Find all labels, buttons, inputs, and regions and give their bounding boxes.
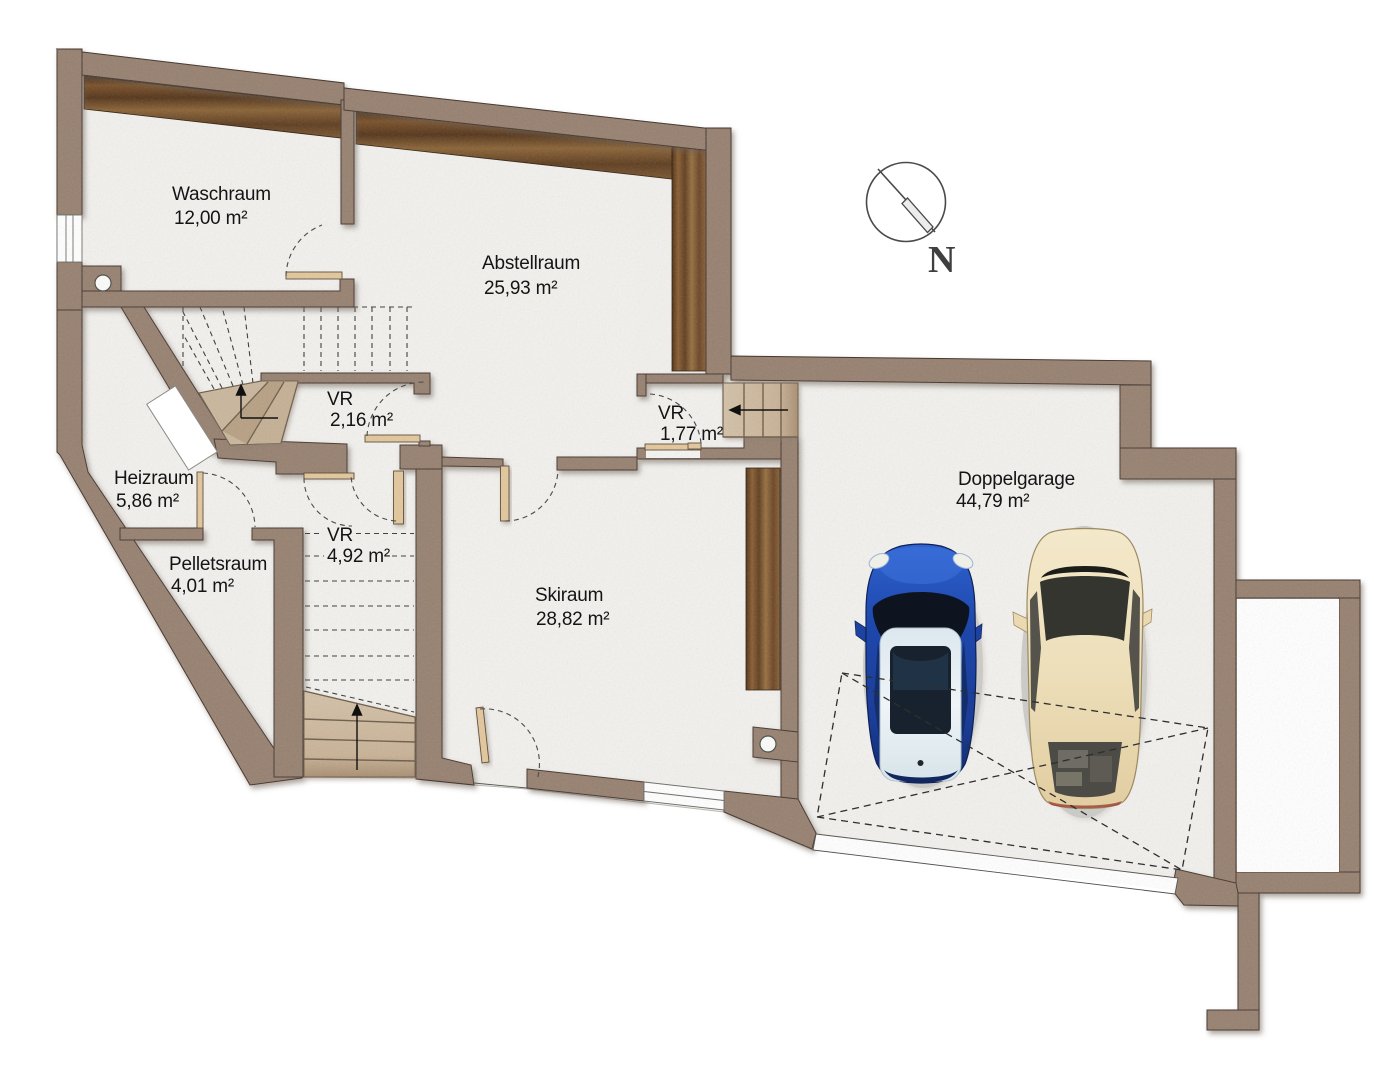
svg-text:Skiraum: Skiraum [535,585,603,606]
svg-text:Heizraum: Heizraum [114,468,194,489]
svg-text:4,92 m²: 4,92 m² [327,546,390,567]
svg-text:4,01 m²: 4,01 m² [171,576,234,597]
svg-text:25,93 m²: 25,93 m² [484,278,557,299]
svg-text:1,77 m²: 1,77 m² [660,424,723,445]
svg-text:N: N [928,239,955,281]
svg-text:2,16 m²: 2,16 m² [330,410,393,431]
svg-text:28,82 m²: 28,82 m² [536,609,609,630]
svg-text:VR: VR [327,389,353,410]
svg-text:VR: VR [658,403,684,424]
svg-text:Doppelgarage: Doppelgarage [958,469,1075,490]
svg-text:12,00 m²: 12,00 m² [174,208,247,229]
svg-text:Abstellraum: Abstellraum [482,253,580,274]
svg-text:VR: VR [327,525,353,546]
svg-text:44,79 m²: 44,79 m² [956,491,1029,512]
svg-text:Waschraum: Waschraum [172,184,271,205]
svg-text:Pelletsraum: Pelletsraum [169,554,267,575]
svg-text:5,86 m²: 5,86 m² [116,491,179,512]
